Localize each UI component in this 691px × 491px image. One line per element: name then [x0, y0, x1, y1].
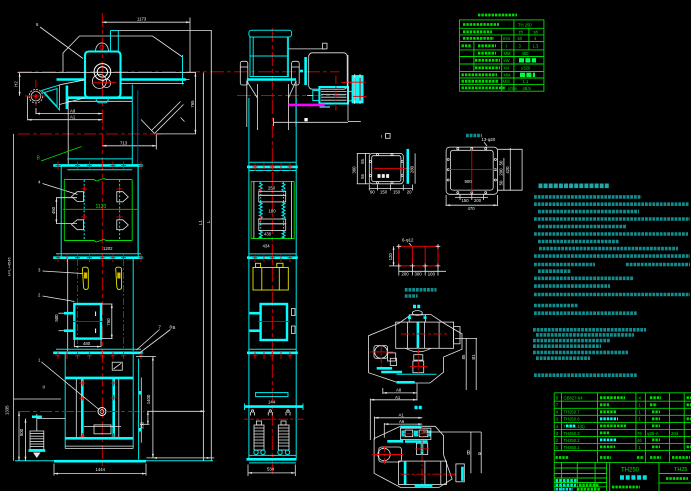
svg-text:KN: KN — [504, 66, 510, 71]
svg-text:500: 500 — [54, 314, 59, 322]
svg-text:TH250.6: TH250.6 — [564, 417, 581, 422]
svg-text:85: 85 — [461, 354, 466, 359]
svg-text:470: 470 — [468, 206, 476, 211]
svg-text:150: 150 — [462, 198, 470, 203]
svg-text:250: 250 — [268, 186, 276, 191]
svg-text:434: 434 — [263, 243, 271, 248]
svg-text:350: 350 — [140, 421, 145, 429]
svg-text:A1: A1 — [70, 114, 76, 119]
svg-text:55: 55 — [360, 159, 365, 164]
svg-text:6-φ12: 6-φ12 — [402, 238, 414, 243]
svg-text:TH250.7: TH250.7 — [564, 410, 581, 415]
svg-text:≥320: ≥320 — [521, 66, 531, 71]
svg-text:50: 50 — [499, 160, 504, 165]
svg-text:420: 420 — [505, 166, 510, 174]
svg-text:I: I — [381, 134, 382, 139]
svg-text:750: 750 — [106, 318, 111, 326]
svg-text:280: 280 — [410, 165, 415, 173]
svg-text:48.5: 48.5 — [523, 86, 532, 91]
svg-text:B1: B1 — [471, 354, 476, 360]
svg-text:150: 150 — [393, 189, 401, 194]
svg-text:1202: 1202 — [103, 246, 113, 251]
svg-text:1.1: 1.1 — [523, 79, 529, 84]
svg-text:I: I — [506, 44, 507, 49]
svg-text:450: 450 — [522, 51, 530, 56]
svg-text:TH250.3: TH250.3 — [564, 431, 581, 436]
svg-text:H2: H2 — [14, 81, 19, 87]
svg-text:480: 480 — [83, 341, 91, 346]
svg-text:MM: MM — [504, 51, 511, 56]
svg-text:zh: zh — [519, 30, 524, 35]
svg-text:13-φ20: 13-φ20 — [482, 137, 496, 142]
svg-text:TH 250: TH 250 — [518, 23, 532, 28]
svg-text:360: 360 — [352, 166, 357, 174]
svg-text:100: 100 — [428, 272, 436, 277]
svg-text:TH250: TH250 — [621, 468, 640, 474]
svg-text:GB827-84: GB827-84 — [564, 396, 584, 401]
svg-text:TH250.2: TH250.2 — [564, 438, 581, 443]
svg-text:A1: A1 — [399, 413, 405, 418]
svg-text:450: 450 — [51, 206, 56, 214]
svg-text:φ25-A: φ25-A — [647, 431, 659, 436]
svg-text:1.3: 1.3 — [533, 44, 539, 49]
svg-text:B: B — [467, 451, 471, 457]
svg-text:200: 200 — [474, 198, 482, 203]
svg-text:sh: sh — [534, 30, 539, 35]
svg-text:713: 713 — [120, 140, 128, 145]
svg-text:150: 150 — [380, 189, 388, 194]
svg-text:180: 180 — [269, 208, 277, 213]
svg-text:20d: 20d — [671, 431, 679, 436]
svg-text:534: 534 — [267, 467, 275, 472]
svg-text:300: 300 — [415, 272, 423, 277]
svg-text:M/S: M/S — [503, 79, 511, 84]
svg-text:II: II — [43, 385, 45, 390]
svg-text:55: 55 — [360, 174, 365, 179]
svg-text:A8: A8 — [396, 387, 402, 392]
svg-text:50: 50 — [499, 180, 504, 185]
svg-text:430: 430 — [264, 231, 272, 236]
svg-text:900: 900 — [465, 179, 473, 184]
svg-text:a: a — [478, 451, 481, 457]
svg-text:B: B — [173, 325, 176, 330]
svg-text:144: 144 — [268, 400, 276, 405]
svg-text:200: 200 — [499, 168, 504, 176]
svg-text:1335: 1335 — [5, 405, 10, 415]
svg-text:120: 120 — [388, 253, 393, 261]
svg-text:1444: 1444 — [96, 467, 106, 472]
svg-text:L1: L1 — [198, 220, 203, 225]
svg-text:MM: MM — [504, 73, 511, 78]
svg-text:200: 200 — [402, 272, 410, 277]
svg-text:TH250.1: TH250.1 — [564, 445, 581, 450]
svg-text:A6: A6 — [399, 419, 405, 424]
svg-text:800: 800 — [19, 428, 24, 436]
svg-text:mm: mm — [503, 36, 510, 41]
svg-text:kW: kW — [504, 58, 510, 63]
svg-text:1173: 1173 — [137, 17, 147, 22]
svg-text:TH25: TH25 — [674, 467, 687, 473]
svg-text:76: 76 — [637, 431, 642, 436]
svg-text:r/min: r/min — [508, 86, 518, 91]
svg-text:A9: A9 — [70, 108, 76, 113]
svg-text:H=L+4545: H=L+4545 — [7, 257, 12, 276]
svg-text:765: 765 — [190, 100, 195, 108]
svg-text:20: 20 — [407, 189, 412, 194]
svg-text:46: 46 — [637, 438, 642, 443]
svg-text:1400: 1400 — [146, 394, 151, 404]
svg-text:90: 90 — [370, 189, 375, 194]
svg-text:50: 50 — [518, 36, 523, 41]
